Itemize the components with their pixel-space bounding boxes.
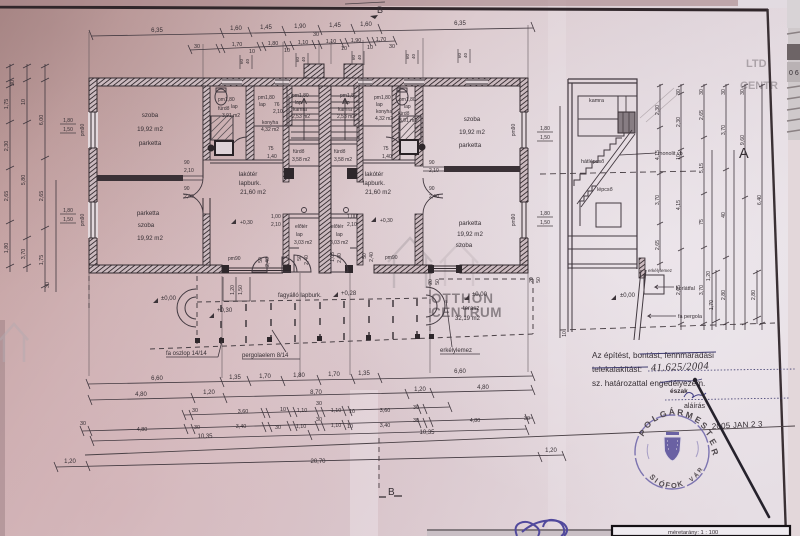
svg-text:1,50: 1,50 — [540, 220, 550, 226]
svg-text:pm1,80: pm1,80 — [218, 97, 235, 103]
svg-text:3,70: 3,70 — [655, 195, 661, 205]
svg-text:50: 50 — [435, 279, 441, 285]
svg-text:30: 30 — [80, 421, 86, 427]
svg-text:4,15: 4,15 — [676, 200, 682, 210]
svg-text:lakótér: lakótér — [365, 171, 384, 178]
svg-text:40: 40 — [357, 54, 362, 60]
svg-text:30: 30 — [699, 89, 705, 95]
svg-text:40: 40 — [245, 58, 250, 64]
svg-text:30: 30 — [524, 416, 530, 422]
svg-text:10: 10 — [280, 407, 286, 413]
svg-text:1,70: 1,70 — [328, 372, 340, 378]
svg-text:1,75: 1,75 — [4, 99, 10, 110]
svg-text:10: 10 — [341, 46, 347, 52]
svg-text:fürdő: fürdő — [398, 111, 410, 117]
svg-text:1,00: 1,00 — [271, 214, 281, 220]
svg-text:4,80: 4,80 — [137, 427, 148, 433]
svg-text:lap: lap — [336, 232, 343, 238]
svg-text:szoba: szoba — [464, 116, 481, 123]
svg-text:lap: lap — [376, 102, 383, 108]
svg-text:parketta: parketta — [137, 210, 160, 217]
svg-text:pm1,80: pm1,80 — [292, 93, 309, 99]
svg-text:1,10: 1,10 — [298, 40, 309, 46]
svg-text:2,40: 2,40 — [369, 252, 375, 262]
svg-text:0 6: 0 6 — [789, 70, 799, 77]
svg-text:41.625/2004: 41.625/2004 — [651, 361, 710, 374]
svg-text:10: 10 — [21, 99, 27, 105]
svg-text:+0,30: +0,30 — [380, 218, 393, 224]
svg-text:6,60: 6,60 — [454, 369, 466, 375]
svg-text:1,10: 1,10 — [297, 408, 308, 414]
svg-text:90: 90 — [184, 186, 190, 192]
svg-text:2,10: 2,10 — [273, 109, 283, 115]
svg-text:erkélylemez: erkélylemez — [440, 348, 472, 354]
svg-text:Á: Á — [668, 406, 675, 417]
svg-text:fürdő: fürdő — [218, 106, 230, 112]
svg-text:1,45: 1,45 — [260, 25, 272, 31]
svg-text:9,60: 9,60 — [740, 135, 746, 145]
svg-text:30: 30 — [313, 32, 319, 38]
svg-text:30: 30 — [194, 44, 200, 50]
svg-text:2,40: 2,40 — [337, 253, 343, 263]
svg-text:4,32 m2: 4,32 m2 — [375, 116, 393, 122]
svg-text:40: 40 — [463, 52, 468, 58]
svg-text:20,70: 20,70 — [310, 459, 326, 465]
svg-text:19,92 m2: 19,92 m2 — [137, 235, 163, 242]
svg-text:3,60: 3,60 — [238, 409, 249, 415]
svg-text:parketta: parketta — [139, 140, 162, 147]
svg-text:parketta: parketta — [459, 142, 482, 149]
svg-text:1,80: 1,80 — [293, 373, 305, 379]
svg-text:méretarány: 1 : 100: méretarány: 1 : 100 — [668, 530, 718, 536]
svg-text:pm90: pm90 — [80, 124, 86, 137]
svg-text:fa pergola: fa pergola — [678, 314, 702, 320]
svg-text:LTD: LTD — [746, 58, 767, 70]
svg-text:1,70: 1,70 — [709, 300, 715, 310]
svg-text:1,10: 1,10 — [331, 408, 342, 414]
svg-text:fa oszlop 14/14: fa oszlop 14/14 — [166, 351, 207, 357]
svg-text:2,65: 2,65 — [4, 191, 10, 202]
svg-text:előtér: előtér — [295, 224, 308, 230]
svg-text:4,32 m2: 4,32 m2 — [261, 127, 279, 133]
svg-text:50: 50 — [258, 257, 264, 263]
svg-text:5,15: 5,15 — [699, 163, 705, 173]
svg-text:1,20: 1,20 — [545, 448, 557, 454]
svg-text:1,80: 1,80 — [540, 211, 550, 217]
svg-text:kamra: kamra — [293, 107, 307, 113]
svg-text:6,00: 6,00 — [39, 115, 45, 126]
svg-text:terasz: terasz — [463, 306, 479, 312]
svg-text:19,92 m2: 19,92 m2 — [137, 126, 163, 133]
svg-text:50: 50 — [297, 255, 303, 261]
svg-text:±0,00: ±0,00 — [620, 293, 636, 299]
svg-text:előtér: előtér — [331, 224, 344, 230]
svg-text:75: 75 — [699, 219, 705, 225]
svg-text:R: R — [677, 407, 684, 417]
svg-text:pm90: pm90 — [80, 214, 86, 227]
svg-text:1,20: 1,20 — [64, 459, 76, 465]
svg-text:2,10: 2,10 — [271, 222, 281, 228]
svg-text:kamra: kamra — [589, 98, 604, 104]
svg-text:pm1,80: pm1,80 — [258, 95, 275, 101]
svg-text:30: 30 — [413, 405, 419, 411]
svg-text:6,35: 6,35 — [454, 21, 466, 27]
svg-text:+0,30: +0,30 — [217, 308, 233, 314]
svg-text:1,40: 1,40 — [267, 154, 277, 160]
svg-text:2,10: 2,10 — [429, 168, 439, 174]
svg-text:2,10: 2,10 — [347, 222, 357, 228]
svg-text:3,03 m2: 3,03 m2 — [294, 240, 312, 246]
svg-text:B: B — [388, 487, 395, 498]
svg-text:20: 20 — [529, 277, 535, 283]
svg-text:2,65: 2,65 — [676, 285, 682, 295]
svg-text:32,19 m2: 32,19 m2 — [455, 316, 481, 322]
svg-text:20: 20 — [428, 279, 434, 285]
svg-text:1,35: 1,35 — [229, 375, 241, 381]
svg-text:40: 40 — [301, 56, 306, 62]
svg-text:3,91 m2: 3,91 m2 — [222, 113, 240, 119]
svg-text:30: 30 — [316, 417, 322, 423]
svg-text:30: 30 — [10, 80, 16, 86]
svg-text:2,40: 2,40 — [429, 194, 439, 200]
svg-text:2,30: 2,30 — [676, 117, 682, 127]
svg-text:1,00: 1,00 — [347, 214, 357, 220]
svg-text:parketta: parketta — [459, 220, 482, 227]
svg-text:1,20: 1,20 — [706, 271, 712, 281]
svg-text:3,70: 3,70 — [721, 125, 727, 135]
svg-text:1,10: 1,10 — [296, 424, 307, 430]
svg-text:2,65: 2,65 — [39, 191, 45, 202]
svg-text:2,40: 2,40 — [184, 194, 194, 200]
svg-text:10: 10 — [676, 154, 682, 160]
svg-text:21,60 m2: 21,60 m2 — [365, 189, 391, 196]
svg-text:fürdő: fürdő — [293, 149, 305, 155]
svg-text:2,30: 2,30 — [4, 141, 10, 152]
svg-text:2,65: 2,65 — [655, 240, 661, 250]
svg-text:30: 30 — [721, 89, 727, 95]
svg-text:B: B — [377, 5, 383, 15]
svg-text:1,70: 1,70 — [232, 42, 243, 48]
svg-text:1,70: 1,70 — [259, 374, 271, 380]
svg-text:lap: lap — [295, 100, 302, 106]
svg-text:1,50: 1,50 — [540, 135, 550, 141]
svg-text:3,40: 3,40 — [236, 424, 247, 430]
svg-text:75: 75 — [383, 146, 389, 152]
svg-text:lapburk.: lapburk. — [363, 180, 385, 187]
svg-text:lap: lap — [231, 104, 238, 110]
svg-text:75: 75 — [268, 146, 274, 152]
svg-text:30: 30 — [389, 44, 395, 50]
svg-text:6,60: 6,60 — [151, 376, 163, 382]
svg-text:21,60 m2: 21,60 m2 — [240, 189, 266, 196]
svg-text:2,30: 2,30 — [655, 105, 661, 115]
svg-text:lépcső: lépcső — [597, 187, 613, 193]
svg-text:10: 10 — [347, 424, 353, 430]
svg-text:1,45: 1,45 — [329, 23, 341, 29]
svg-text:2,65: 2,65 — [699, 110, 705, 120]
svg-text:1,70: 1,70 — [376, 37, 387, 43]
svg-text:lakótér: lakótér — [239, 171, 258, 178]
svg-text:lap: lap — [296, 232, 303, 238]
svg-text:±0,00: ±0,00 — [472, 292, 488, 298]
svg-text:1,35: 1,35 — [358, 371, 370, 377]
svg-text:40: 40 — [721, 212, 727, 218]
svg-text:sz. határozattal engedélyezem.: sz. határozattal engedélyezem. — [592, 379, 705, 388]
svg-text:szoba: szoba — [142, 112, 159, 119]
svg-text:pm90: pm90 — [385, 255, 398, 261]
svg-text:1,20: 1,20 — [230, 285, 236, 295]
svg-text:1,40: 1,40 — [382, 154, 392, 160]
svg-text:30: 30 — [740, 89, 746, 95]
svg-text:10: 10 — [562, 331, 568, 337]
svg-text:10,35: 10,35 — [419, 430, 435, 436]
svg-text:2,80: 2,80 — [751, 290, 757, 300]
svg-text:pm90: pm90 — [511, 214, 517, 227]
svg-text:1,80: 1,80 — [540, 126, 550, 132]
svg-text:1,20: 1,20 — [414, 387, 426, 393]
svg-text:30: 30 — [275, 425, 281, 431]
svg-text:konyha: konyha — [376, 109, 392, 115]
svg-text:pm1,8: pm1,8 — [340, 93, 354, 99]
svg-text:3,58 m2: 3,58 m2 — [334, 157, 352, 163]
svg-text:40: 40 — [411, 53, 416, 59]
svg-text:30: 30 — [192, 408, 198, 414]
svg-text:3,70: 3,70 — [21, 249, 27, 260]
svg-text:90: 90 — [429, 186, 435, 192]
svg-text:A: A — [739, 146, 749, 162]
svg-text:pm1,80: pm1,80 — [399, 97, 416, 103]
svg-text:30: 30 — [194, 425, 200, 431]
svg-text:2,40: 2,40 — [304, 255, 310, 265]
svg-text:+0,28: +0,28 — [341, 291, 357, 297]
svg-text:3,91 m2: 3,91 m2 — [399, 118, 417, 124]
svg-text:pm1,80: pm1,80 — [374, 95, 391, 101]
svg-text:pm90: pm90 — [511, 124, 517, 137]
svg-text:hátlépcső: hátlépcső — [581, 159, 604, 165]
svg-text:konyha: konyha — [262, 120, 278, 126]
svg-text:1,50: 1,50 — [63, 127, 73, 133]
svg-text:fürdő: fürdő — [334, 149, 346, 155]
svg-text:1,75: 1,75 — [39, 255, 45, 266]
svg-text:lap: lap — [404, 104, 411, 110]
svg-text:1,90: 1,90 — [294, 24, 306, 30]
svg-text:3,03 m2: 3,03 m2 — [330, 240, 348, 246]
svg-text:10: 10 — [284, 48, 290, 54]
svg-text:50: 50 — [536, 277, 542, 283]
svg-text:1,60: 1,60 — [360, 22, 372, 28]
svg-text:6,40: 6,40 — [757, 195, 763, 205]
svg-text:5,80: 5,80 — [21, 175, 27, 186]
svg-text:1,20: 1,20 — [203, 390, 215, 396]
svg-text:1,80: 1,80 — [63, 118, 73, 124]
svg-text:19,92 m2: 19,92 m2 — [459, 129, 485, 136]
svg-text:2,10: 2,10 — [184, 168, 194, 174]
svg-text:szoba: szoba — [138, 222, 155, 229]
svg-text:lap: lap — [259, 102, 266, 108]
svg-text:±0,00: ±0,00 — [161, 296, 177, 302]
svg-text:3,58 m2: 3,58 m2 — [292, 157, 310, 163]
svg-text:8,70: 8,70 — [310, 390, 322, 396]
svg-text:4,80: 4,80 — [470, 418, 481, 424]
svg-text:10: 10 — [349, 409, 355, 415]
svg-text:1,50: 1,50 — [238, 285, 244, 295]
svg-text:fagyálló lapburk.: fagyálló lapburk. — [278, 293, 322, 299]
svg-text:szoba: szoba — [456, 242, 473, 249]
svg-text:lap: lap — [343, 100, 350, 106]
svg-text:10: 10 — [367, 45, 373, 51]
svg-text:2,40: 2,40 — [265, 257, 271, 267]
svg-text:10,35: 10,35 — [197, 434, 213, 440]
svg-text:90: 90 — [429, 160, 435, 166]
svg-text:19,92 m2: 19,92 m2 — [457, 231, 483, 238]
svg-text:lapburk.: lapburk. — [239, 180, 261, 187]
svg-text:50: 50 — [362, 253, 368, 259]
svg-text:10: 10 — [249, 49, 255, 55]
svg-text:3,70: 3,70 — [699, 285, 705, 295]
svg-text:6,35: 6,35 — [151, 28, 163, 34]
svg-text:4,80: 4,80 — [135, 392, 147, 398]
svg-text:30: 30 — [676, 89, 682, 95]
svg-text:1,10: 1,10 — [331, 423, 342, 429]
svg-text:1,05: 1,05 — [330, 252, 336, 262]
svg-text:30: 30 — [413, 418, 419, 424]
svg-text:1,10: 1,10 — [326, 39, 337, 45]
svg-text:1,60: 1,60 — [230, 26, 242, 32]
svg-text:telekalakítást:: telekalakítást: — [592, 365, 642, 374]
svg-text:1,80: 1,80 — [4, 243, 10, 254]
svg-text:1,90: 1,90 — [351, 38, 362, 44]
svg-text:90: 90 — [184, 160, 190, 166]
svg-text:2,80: 2,80 — [721, 290, 727, 300]
svg-text:1,80: 1,80 — [63, 208, 73, 214]
svg-text:1,50: 1,50 — [63, 217, 73, 223]
svg-text:76: 76 — [274, 102, 280, 108]
svg-text:3,40: 3,40 — [380, 423, 391, 429]
svg-text:pergolaelem 8/14: pergolaelem 8/14 — [242, 353, 289, 359]
svg-text:4,15: 4,15 — [655, 150, 661, 160]
svg-text:2,53 m2: 2,53 m2 — [337, 114, 355, 120]
svg-text:kamra: kamra — [338, 107, 352, 113]
svg-text:4,80: 4,80 — [477, 385, 489, 391]
svg-text:pm90: pm90 — [228, 256, 241, 262]
svg-text:1,80: 1,80 — [268, 41, 279, 47]
svg-text:2,53 m2: 2,53 m2 — [292, 114, 310, 120]
svg-text:3,60: 3,60 — [380, 408, 391, 414]
svg-text:30: 30 — [316, 401, 322, 407]
svg-text:30: 30 — [45, 282, 51, 288]
svg-text:+0,30: +0,30 — [240, 220, 253, 226]
